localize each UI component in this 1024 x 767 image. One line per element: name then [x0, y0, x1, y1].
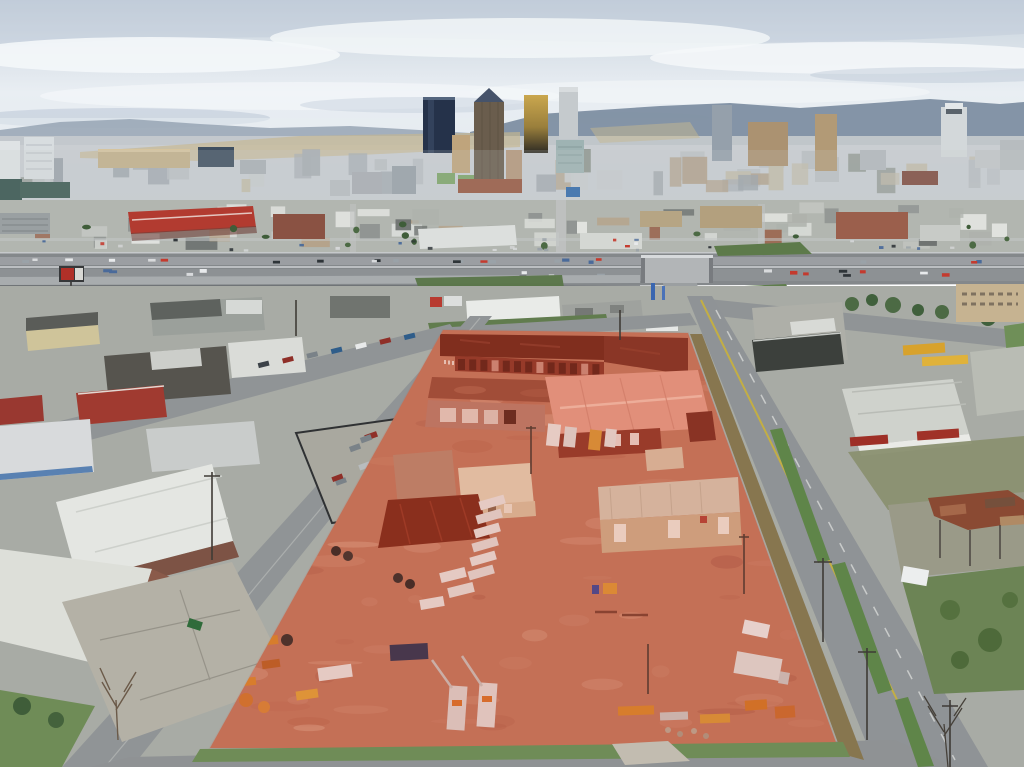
overpass-shadow-right	[709, 258, 713, 283]
foreground	[0, 283, 1024, 767]
white-warehouse-mid-2	[580, 233, 642, 249]
skyline-haze-wash	[0, 150, 1024, 204]
overpass-shadow-left	[641, 258, 645, 283]
white-warehouse-mid	[418, 225, 517, 249]
aerial-photo-canvas	[0, 0, 1024, 767]
blue-roof-building	[566, 187, 580, 197]
tan-block-1	[640, 211, 682, 227]
metal-building-right-edge	[970, 346, 1024, 416]
tan-block-2	[700, 206, 762, 228]
aerial-photo: Aerial drone photo of a large industrial…	[0, 0, 1024, 767]
gray-block-right	[920, 225, 960, 241]
midground-street-vertical	[556, 200, 566, 256]
overpass-rail	[641, 255, 713, 258]
overpass-bridge	[641, 255, 713, 283]
brick-midrise	[273, 214, 325, 239]
brick-block-right	[836, 212, 908, 239]
